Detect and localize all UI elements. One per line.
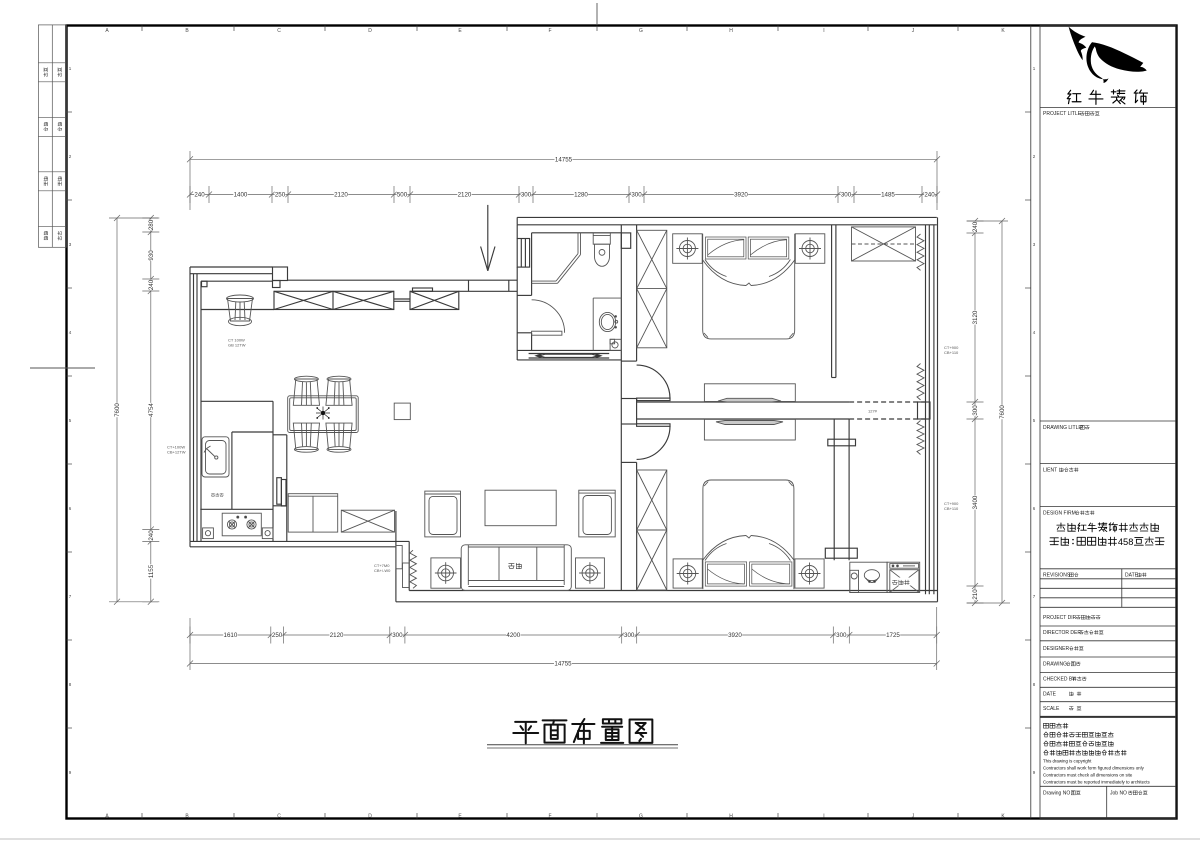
svg-text:210: 210 [972, 589, 979, 600]
svg-text:DRAWING: DRAWING [1043, 662, 1067, 668]
svg-text:300: 300 [631, 192, 642, 199]
svg-text:3400: 3400 [972, 495, 979, 509]
svg-text:Job NO: Job NO [1110, 791, 1127, 797]
svg-text:CB+12TW: CB+12TW [167, 450, 186, 455]
svg-text:3120: 3120 [972, 310, 979, 324]
svg-text:H: H [729, 814, 733, 820]
svg-text:240: 240 [148, 279, 155, 290]
svg-text:127#: 127# [868, 409, 878, 414]
svg-text:3920: 3920 [734, 192, 748, 199]
svg-text:300: 300 [841, 192, 852, 199]
svg-text:F: F [548, 814, 551, 820]
svg-text:1610: 1610 [224, 632, 238, 639]
svg-text:CB+110: CB+110 [944, 350, 959, 355]
svg-text:250: 250 [272, 632, 283, 639]
svg-text:2120: 2120 [334, 192, 348, 199]
svg-text:1485: 1485 [881, 192, 895, 199]
svg-text:240: 240 [194, 192, 205, 199]
svg-text:250: 250 [275, 192, 286, 199]
svg-text:Drawing NO: Drawing NO [1043, 791, 1070, 797]
svg-text:DRAWING LITLE: DRAWING LITLE [1043, 425, 1082, 431]
svg-text:7600: 7600 [999, 405, 1006, 419]
svg-text:240: 240 [148, 530, 155, 541]
svg-text:Contractors shall work form fi: Contractors shall work form figured dime… [1043, 766, 1145, 771]
svg-text:500: 500 [397, 192, 408, 199]
svg-text:DESIGNER: DESIGNER [1043, 646, 1070, 652]
svg-text:4200: 4200 [506, 632, 520, 639]
svg-text:REVISIONS: REVISIONS [1043, 573, 1071, 579]
svg-text:4754: 4754 [148, 403, 155, 417]
svg-text:2120: 2120 [330, 632, 344, 639]
svg-text:CB+110: CB+110 [944, 506, 959, 511]
svg-text:LIENT: LIENT [1043, 468, 1057, 474]
svg-text:D: D [368, 28, 372, 34]
svg-text:SCALE: SCALE [1043, 706, 1060, 712]
svg-text:Contractors must be reported i: Contractors must be reported immediately… [1043, 780, 1150, 785]
svg-text:CB+/-W0: CB+/-W0 [374, 568, 391, 573]
svg-text:GB 12TW: GB 12TW [228, 343, 246, 348]
svg-text:C: C [277, 814, 281, 820]
svg-text:CHECKED BY: CHECKED BY [1043, 677, 1076, 683]
svg-text:930: 930 [148, 250, 155, 261]
svg-text:DESIGN FIRM: DESIGN FIRM [1043, 511, 1076, 517]
svg-text:DATE: DATE [1043, 692, 1057, 698]
svg-text:7600: 7600 [114, 403, 121, 417]
svg-text:300: 300 [624, 632, 635, 639]
svg-text:DIRECTOR DER: DIRECTOR DER [1043, 630, 1081, 636]
svg-text:1725: 1725 [886, 632, 900, 639]
svg-text:300: 300 [972, 405, 979, 416]
svg-text:PROJECT LITLE: PROJECT LITLE [1043, 111, 1082, 117]
svg-text:D: D [368, 814, 372, 820]
svg-text:Contractors must check all dim: Contractors must check all dimensions on… [1043, 773, 1133, 778]
svg-text:300: 300 [392, 632, 403, 639]
svg-text:14755: 14755 [554, 661, 572, 668]
svg-text:1400: 1400 [234, 192, 248, 199]
svg-text:I: I [823, 28, 824, 34]
svg-text:H: H [729, 28, 733, 34]
svg-text:2120: 2120 [458, 192, 472, 199]
svg-text:1155: 1155 [148, 564, 155, 578]
svg-text:This drawing is copyright: This drawing is copyright [1043, 759, 1092, 764]
svg-text:F: F [548, 28, 551, 34]
svg-text:PROJECT DIR: PROJECT DIR [1043, 615, 1077, 621]
svg-text:300: 300 [521, 192, 532, 199]
svg-text:280: 280 [148, 219, 155, 230]
svg-text:1280: 1280 [574, 192, 588, 199]
svg-text:300: 300 [836, 632, 847, 639]
svg-text:14755: 14755 [555, 157, 573, 164]
svg-text:458: 458 [1118, 537, 1134, 547]
svg-text:I: I [823, 814, 824, 820]
svg-text:240: 240 [972, 221, 979, 232]
svg-text:C: C [277, 28, 281, 34]
svg-text:240: 240 [924, 192, 935, 199]
svg-text:3920: 3920 [728, 632, 742, 639]
svg-text:DATE: DATE [1125, 573, 1139, 579]
svg-text:G: G [639, 814, 643, 820]
svg-text:G: G [639, 28, 643, 34]
